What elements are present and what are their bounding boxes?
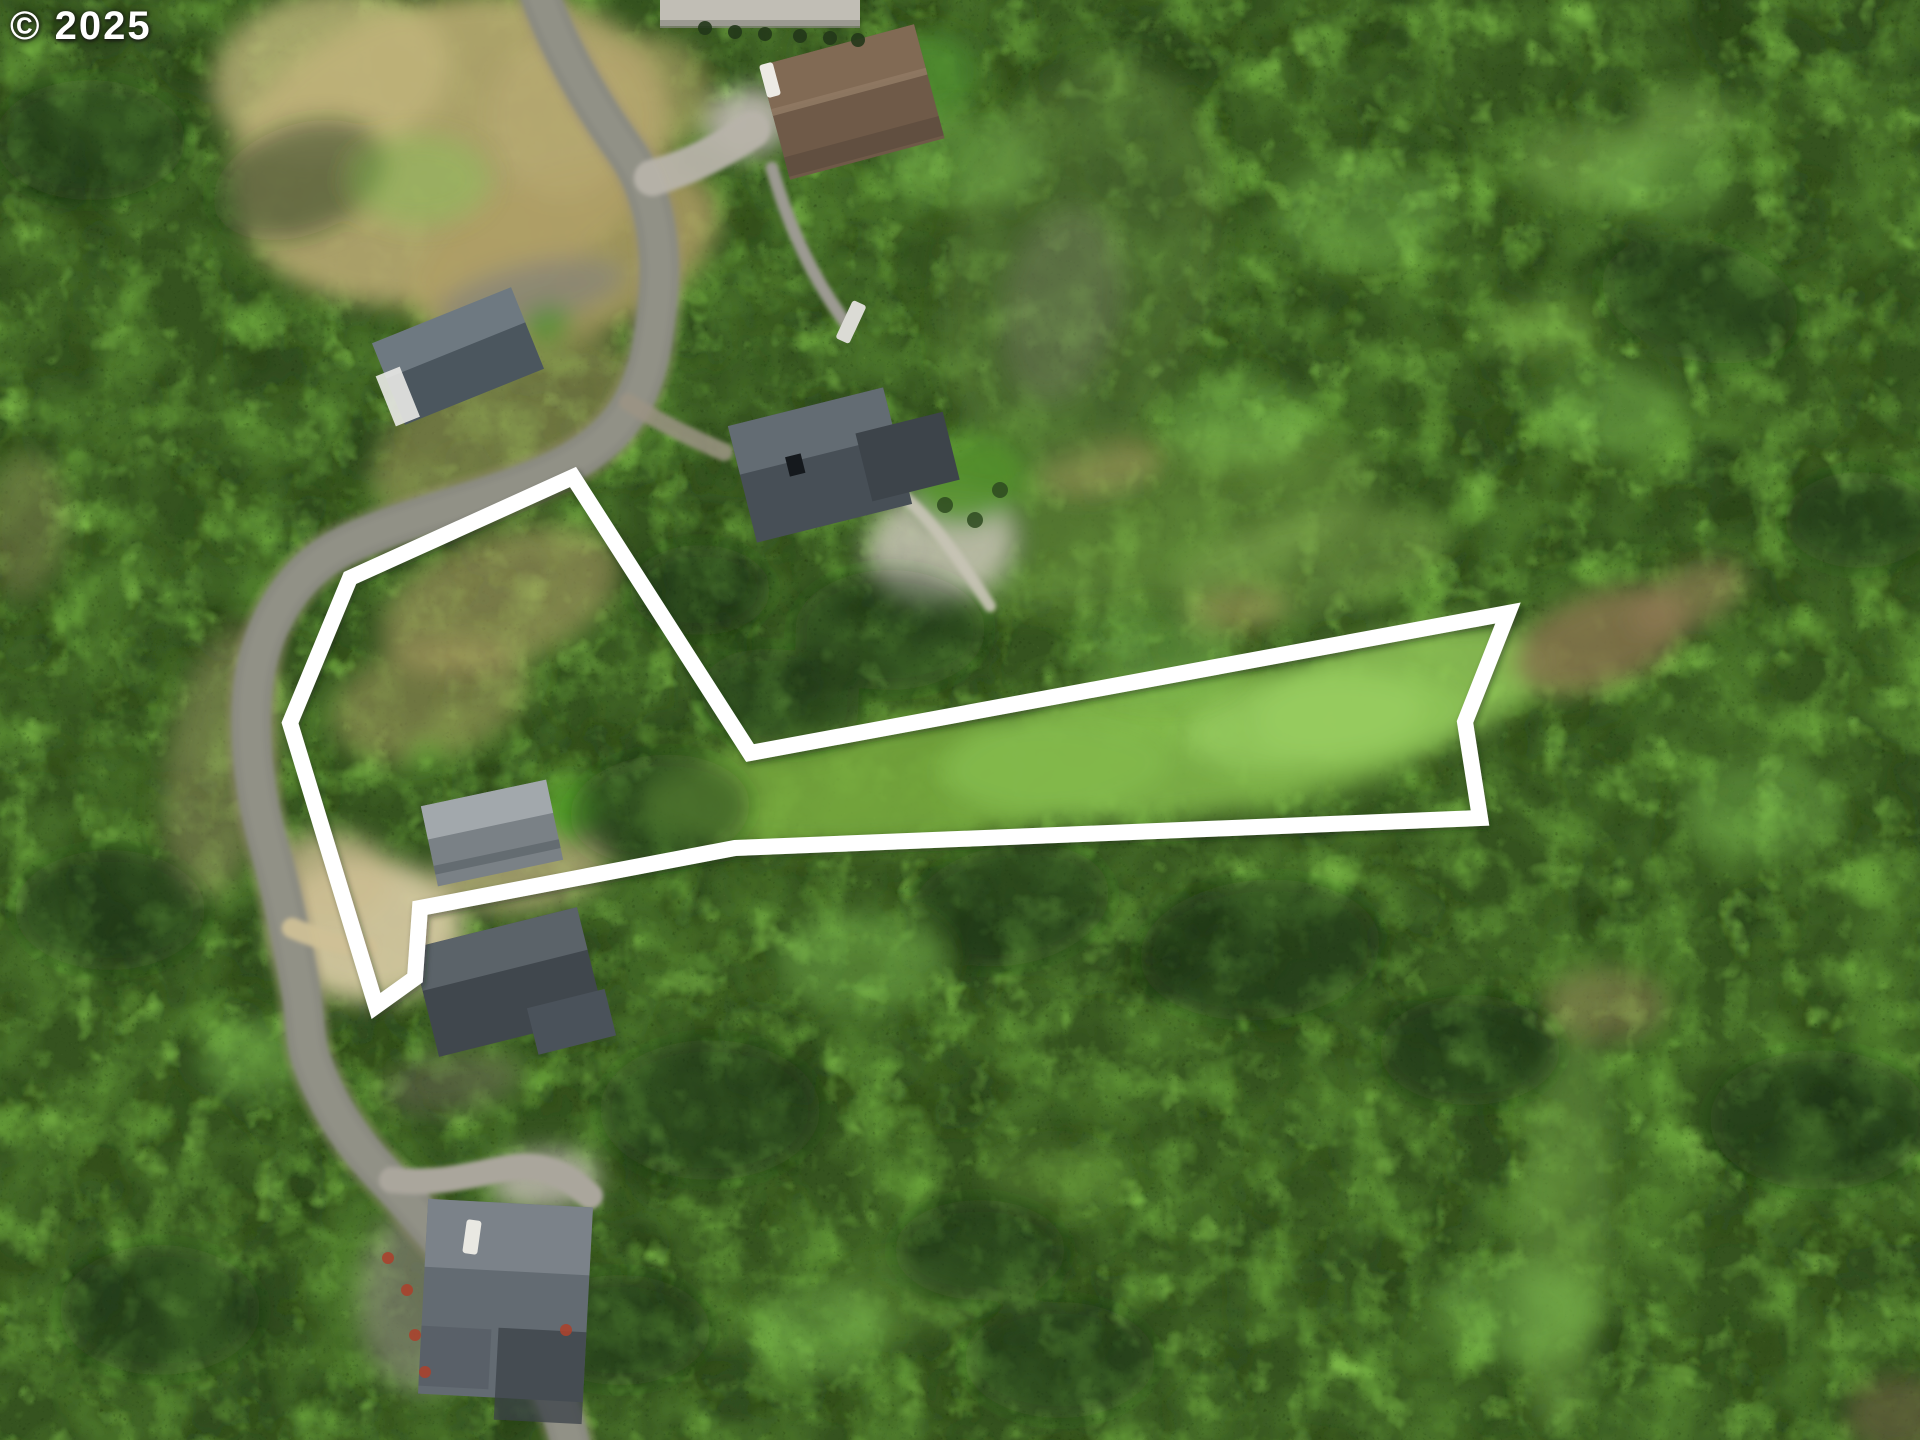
tree-highlight: [775, 910, 945, 1010]
ground-patch: [1485, 295, 1605, 365]
red-shrub: [419, 1366, 431, 1378]
red-shrub: [560, 1324, 572, 1336]
tree-highlight: [1590, 138, 1730, 222]
copyright-watermark: © 2025: [10, 4, 152, 49]
red-shrub: [382, 1252, 394, 1264]
tree-shadow: [600, 1040, 820, 1180]
tree-shadow: [15, 850, 205, 970]
tree-shadow: [60, 1245, 260, 1375]
garden-bush: [937, 497, 953, 513]
hedge-bush: [698, 21, 712, 35]
hedge-bush: [823, 31, 837, 45]
hedge-bush: [728, 25, 742, 39]
aerial-photo: © 2025: [0, 0, 1920, 1440]
tree-highlight: [1540, 365, 1680, 455]
aerial-photo-canvas: [0, 0, 1920, 1440]
tree-shadow: [795, 570, 985, 690]
tree-highlight: [350, 135, 490, 225]
house-bottom-roof-facet: [494, 1328, 587, 1424]
tree-shadow: [1710, 1050, 1920, 1190]
building-top-edge-roof-facet: [660, 20, 860, 28]
house-bottom: [417, 1199, 593, 1424]
tree-highlight: [750, 1285, 890, 1375]
tree-highlight: [1680, 760, 1840, 860]
tree-highlight: [1430, 1260, 1590, 1360]
garden-bush: [967, 512, 983, 528]
red-shrub: [401, 1284, 413, 1296]
tree-highlight: [1165, 375, 1315, 465]
tree-shadow: [1380, 995, 1560, 1105]
house-bottom-roof-facet: [425, 1199, 593, 1276]
tree-highlight: [1270, 155, 1450, 265]
tree-shadow: [895, 1200, 1065, 1300]
building-top-edge: [660, 0, 860, 28]
red-shrub: [409, 1329, 421, 1341]
tree-shadow: [0, 80, 185, 200]
tree-shadow: [965, 1302, 1155, 1418]
hedge-bush: [793, 29, 807, 43]
hedge-bush: [851, 33, 865, 47]
hedge-bush: [758, 27, 772, 41]
house-bottom-roof-facet: [418, 1326, 491, 1390]
ground-patch: [1543, 969, 1667, 1041]
garden-bush: [992, 482, 1008, 498]
